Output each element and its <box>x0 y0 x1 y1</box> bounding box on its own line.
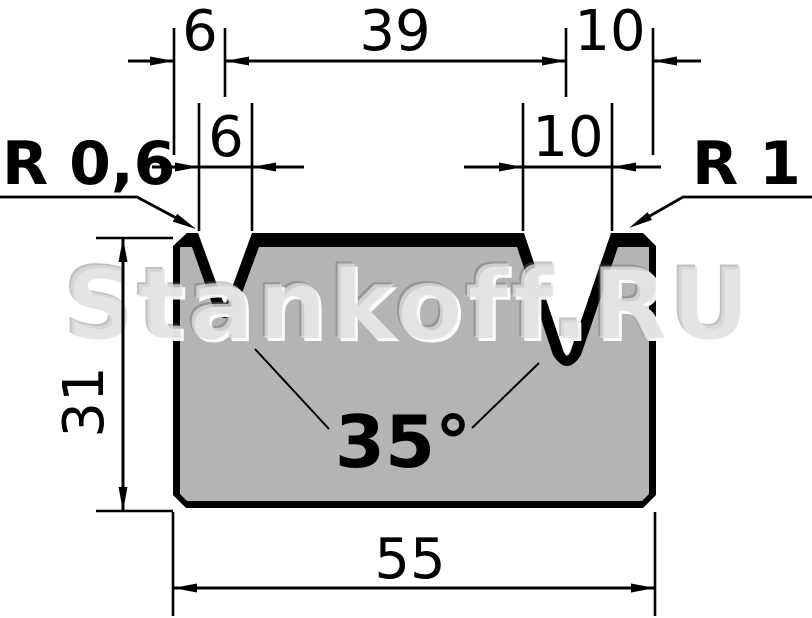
dim-height-value: 31 <box>52 366 117 437</box>
dim-width: 55 <box>173 512 655 616</box>
arrowhead <box>119 487 128 511</box>
radius-left-label: R 0,6 <box>2 129 175 199</box>
leader-line-radius-left <box>0 197 180 220</box>
arrowhead <box>252 163 276 172</box>
arrowhead <box>629 212 652 228</box>
arrowhead <box>631 584 655 593</box>
radius-right-label: R 1 <box>692 129 801 199</box>
arrowhead <box>653 57 677 66</box>
drawing-canvas: Stankoff.RU Stankoff.RU Stankoff.RU 6 39… <box>0 0 812 618</box>
arrowhead <box>542 57 566 66</box>
arrowhead <box>150 57 174 66</box>
dim-v-openings: 6 10 <box>152 103 661 231</box>
arrowhead <box>225 57 249 66</box>
technical-drawing-2v-die: Stankoff.RU Stankoff.RU Stankoff.RU 6 39… <box>0 0 812 618</box>
dim-top-right-offset-value: 10 <box>574 0 645 64</box>
arrowhead <box>173 584 197 593</box>
arrowhead <box>173 214 196 229</box>
angle-label: 35° <box>335 400 471 484</box>
dim-width-value: 55 <box>374 527 445 592</box>
dim-left-v-opening-value: 6 <box>208 105 244 170</box>
arrowhead <box>175 163 199 172</box>
watermark: Stankoff.RU Stankoff.RU Stankoff.RU <box>62 246 755 365</box>
dim-top-left-offset-value: 6 <box>182 0 218 64</box>
radius-callouts: R 0,6 R 1 <box>0 129 812 229</box>
watermark-text: Stankoff.RU <box>64 248 752 362</box>
arrowhead <box>499 163 523 172</box>
arrowhead <box>612 163 636 172</box>
dim-top-span-value: 39 <box>359 0 430 64</box>
dim-right-v-opening-value: 10 <box>532 105 603 170</box>
leader-line-radius-right <box>648 197 812 217</box>
